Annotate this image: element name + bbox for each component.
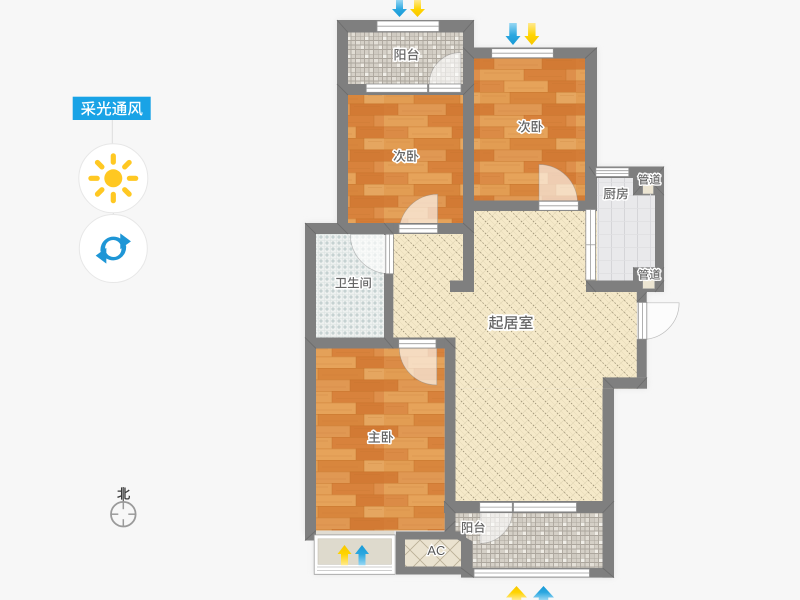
svg-text:AC: AC — [427, 543, 445, 558]
